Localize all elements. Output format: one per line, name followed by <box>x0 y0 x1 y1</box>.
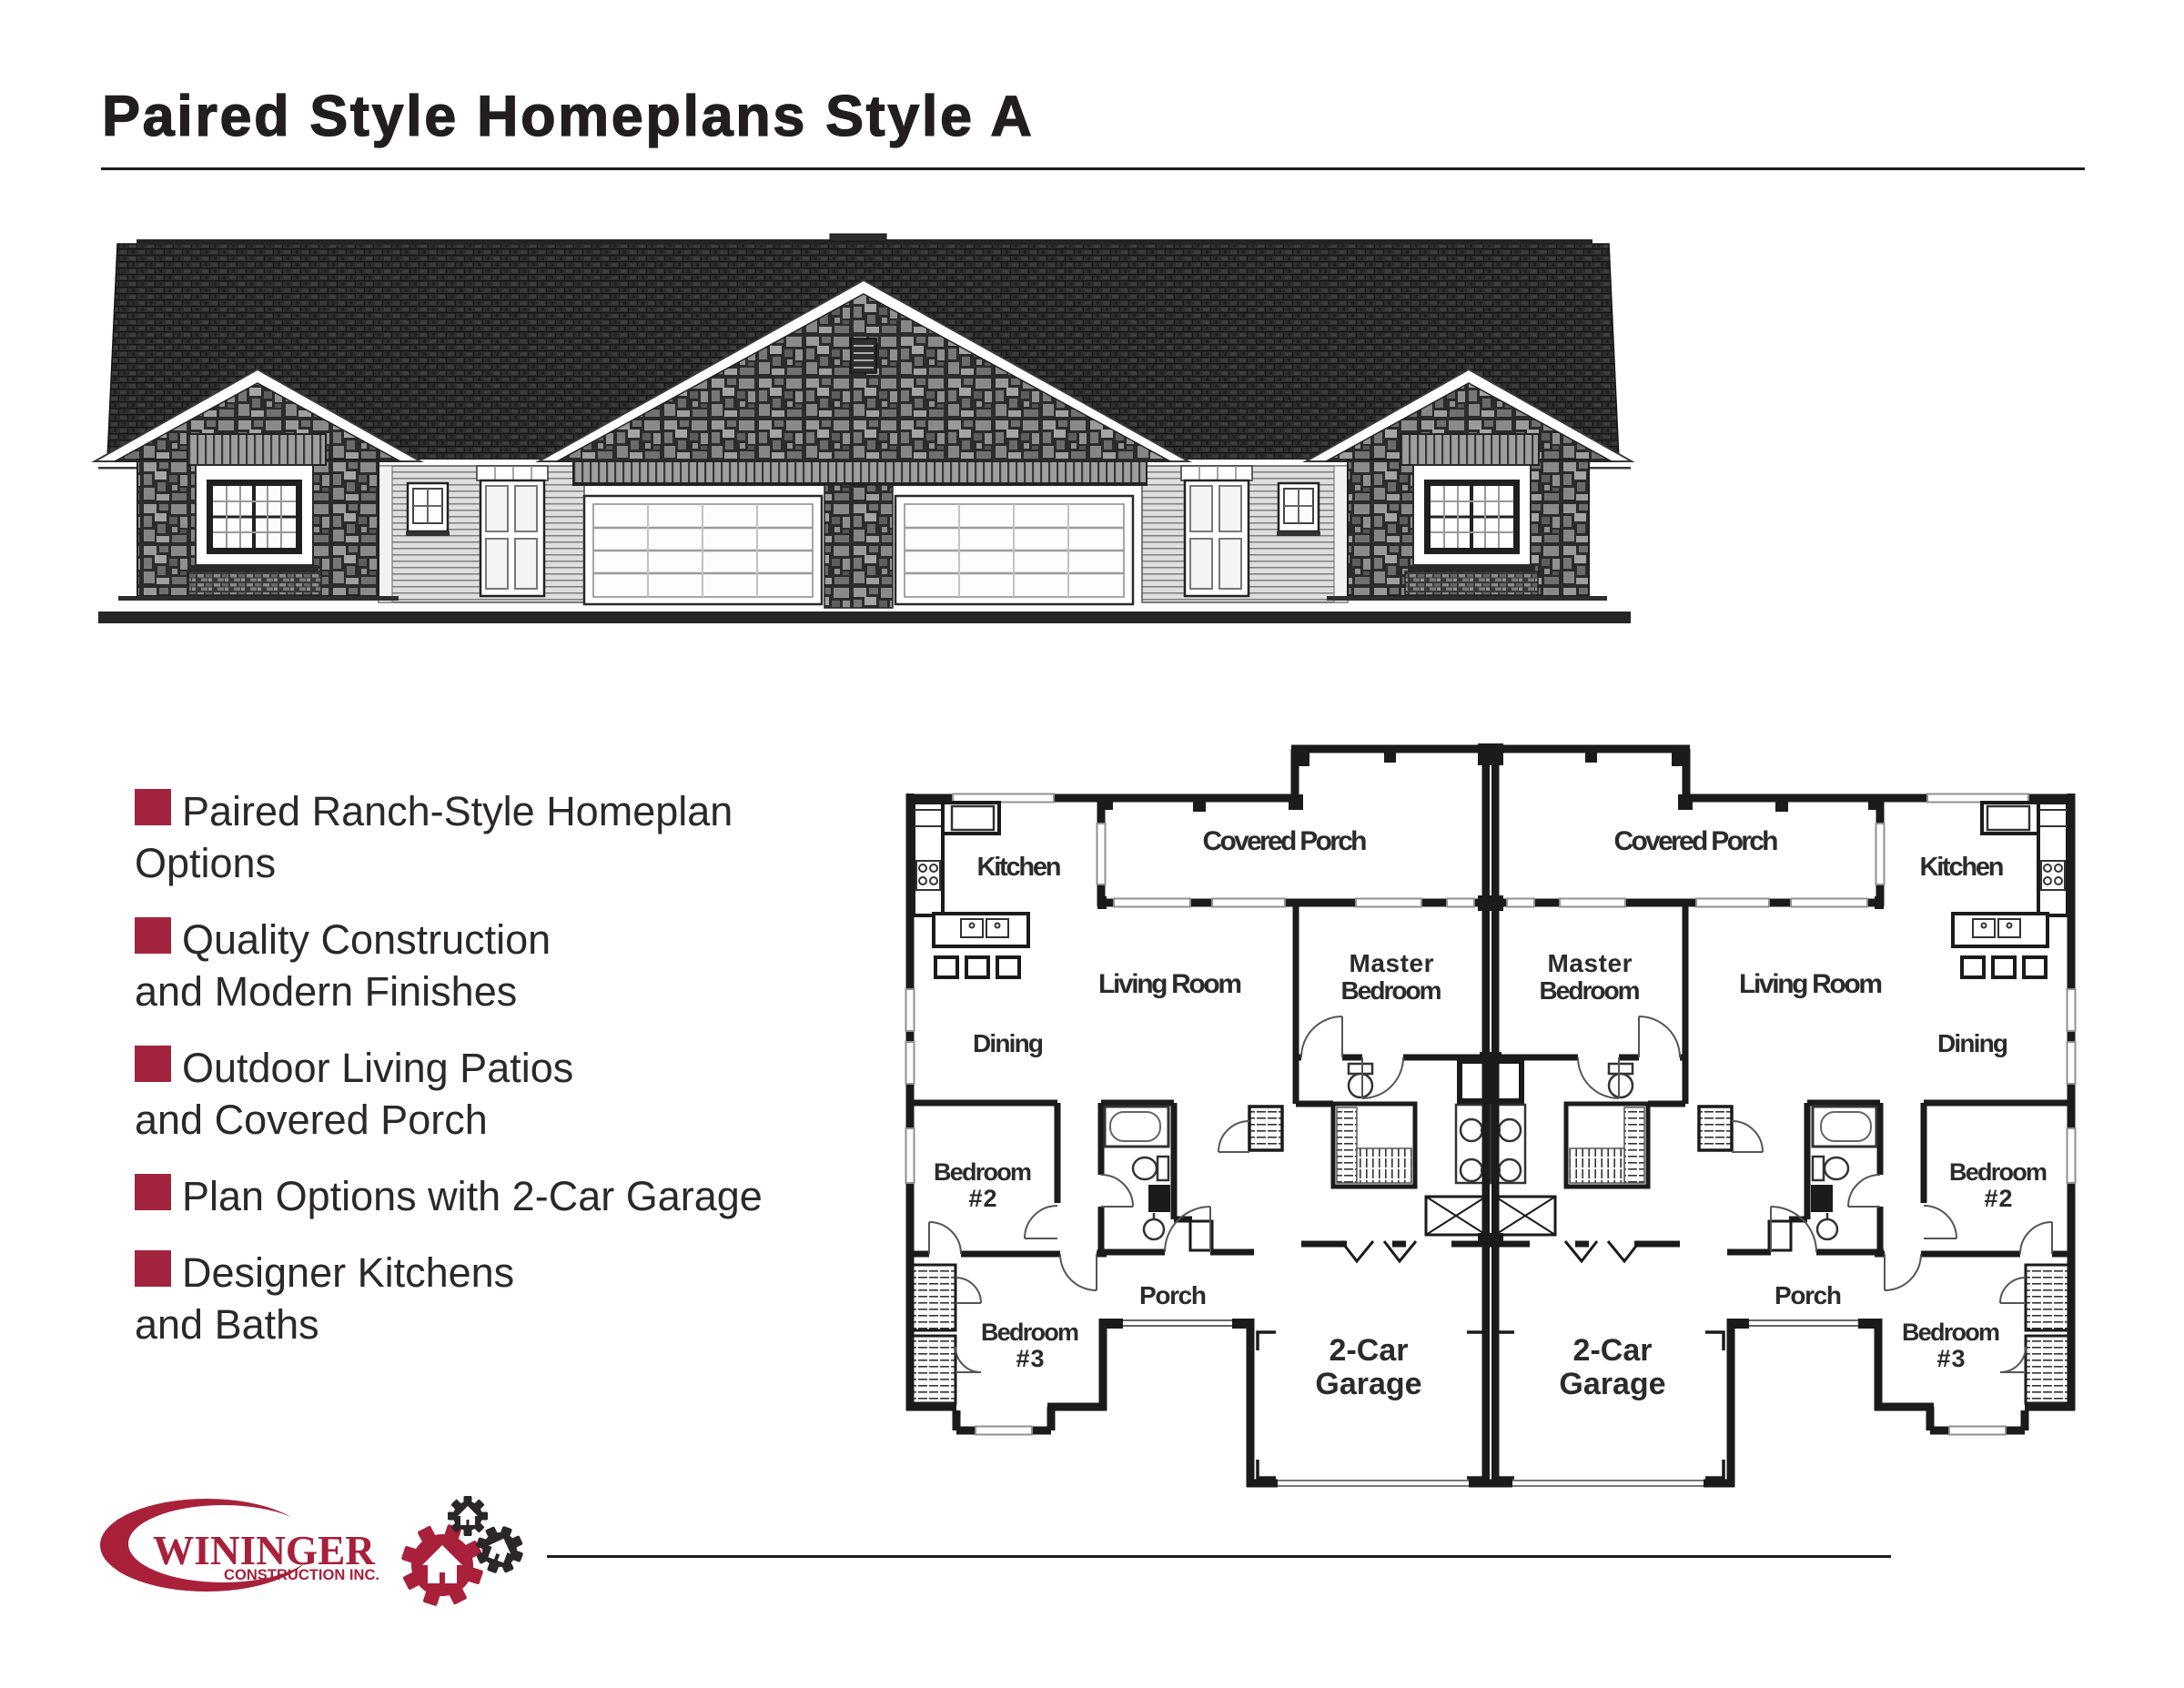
svg-text:Bedroom: Bedroom <box>1902 1319 2000 1346</box>
svg-text:Bedroom: Bedroom <box>1949 1158 2047 1186</box>
svg-text:2-Car: 2-Car <box>1573 1333 1653 1368</box>
svg-text:Master: Master <box>1548 949 1633 977</box>
svg-text:Bedroom: Bedroom <box>1540 976 1641 1005</box>
svg-text:Dining: Dining <box>1937 1029 2008 1057</box>
svg-text:Kitchen: Kitchen <box>1920 853 2005 882</box>
svg-text:Kitchen: Kitchen <box>977 853 1062 882</box>
svg-text:#2: #2 <box>1985 1185 2013 1212</box>
svg-text:Garage: Garage <box>1315 1367 1421 1401</box>
svg-text:Living Room: Living Room <box>1739 969 1883 999</box>
svg-text:Bedroom: Bedroom <box>934 1158 1032 1186</box>
svg-text:2-Car: 2-Car <box>1330 1333 1409 1368</box>
svg-text:Porch: Porch <box>1139 1281 1207 1309</box>
svg-text:Bedroom: Bedroom <box>981 1319 1079 1346</box>
svg-text:Master: Master <box>1350 949 1434 977</box>
svg-text:#3: #3 <box>1016 1345 1045 1372</box>
svg-text:Bedroom: Bedroom <box>1341 976 1442 1005</box>
svg-text:Covered Porch: Covered Porch <box>1614 826 1779 856</box>
svg-text:Living Room: Living Room <box>1098 969 1242 999</box>
svg-text:Covered Porch: Covered Porch <box>1203 826 1368 856</box>
svg-text:CONSTRUCTION INC.: CONSTRUCTION INC. <box>224 1567 379 1583</box>
svg-text:Dining: Dining <box>973 1029 1044 1057</box>
svg-text:#3: #3 <box>1937 1345 1966 1372</box>
svg-text:Porch: Porch <box>1774 1281 1842 1309</box>
svg-text:#2: #2 <box>969 1185 997 1212</box>
svg-text:Garage: Garage <box>1559 1367 1665 1401</box>
